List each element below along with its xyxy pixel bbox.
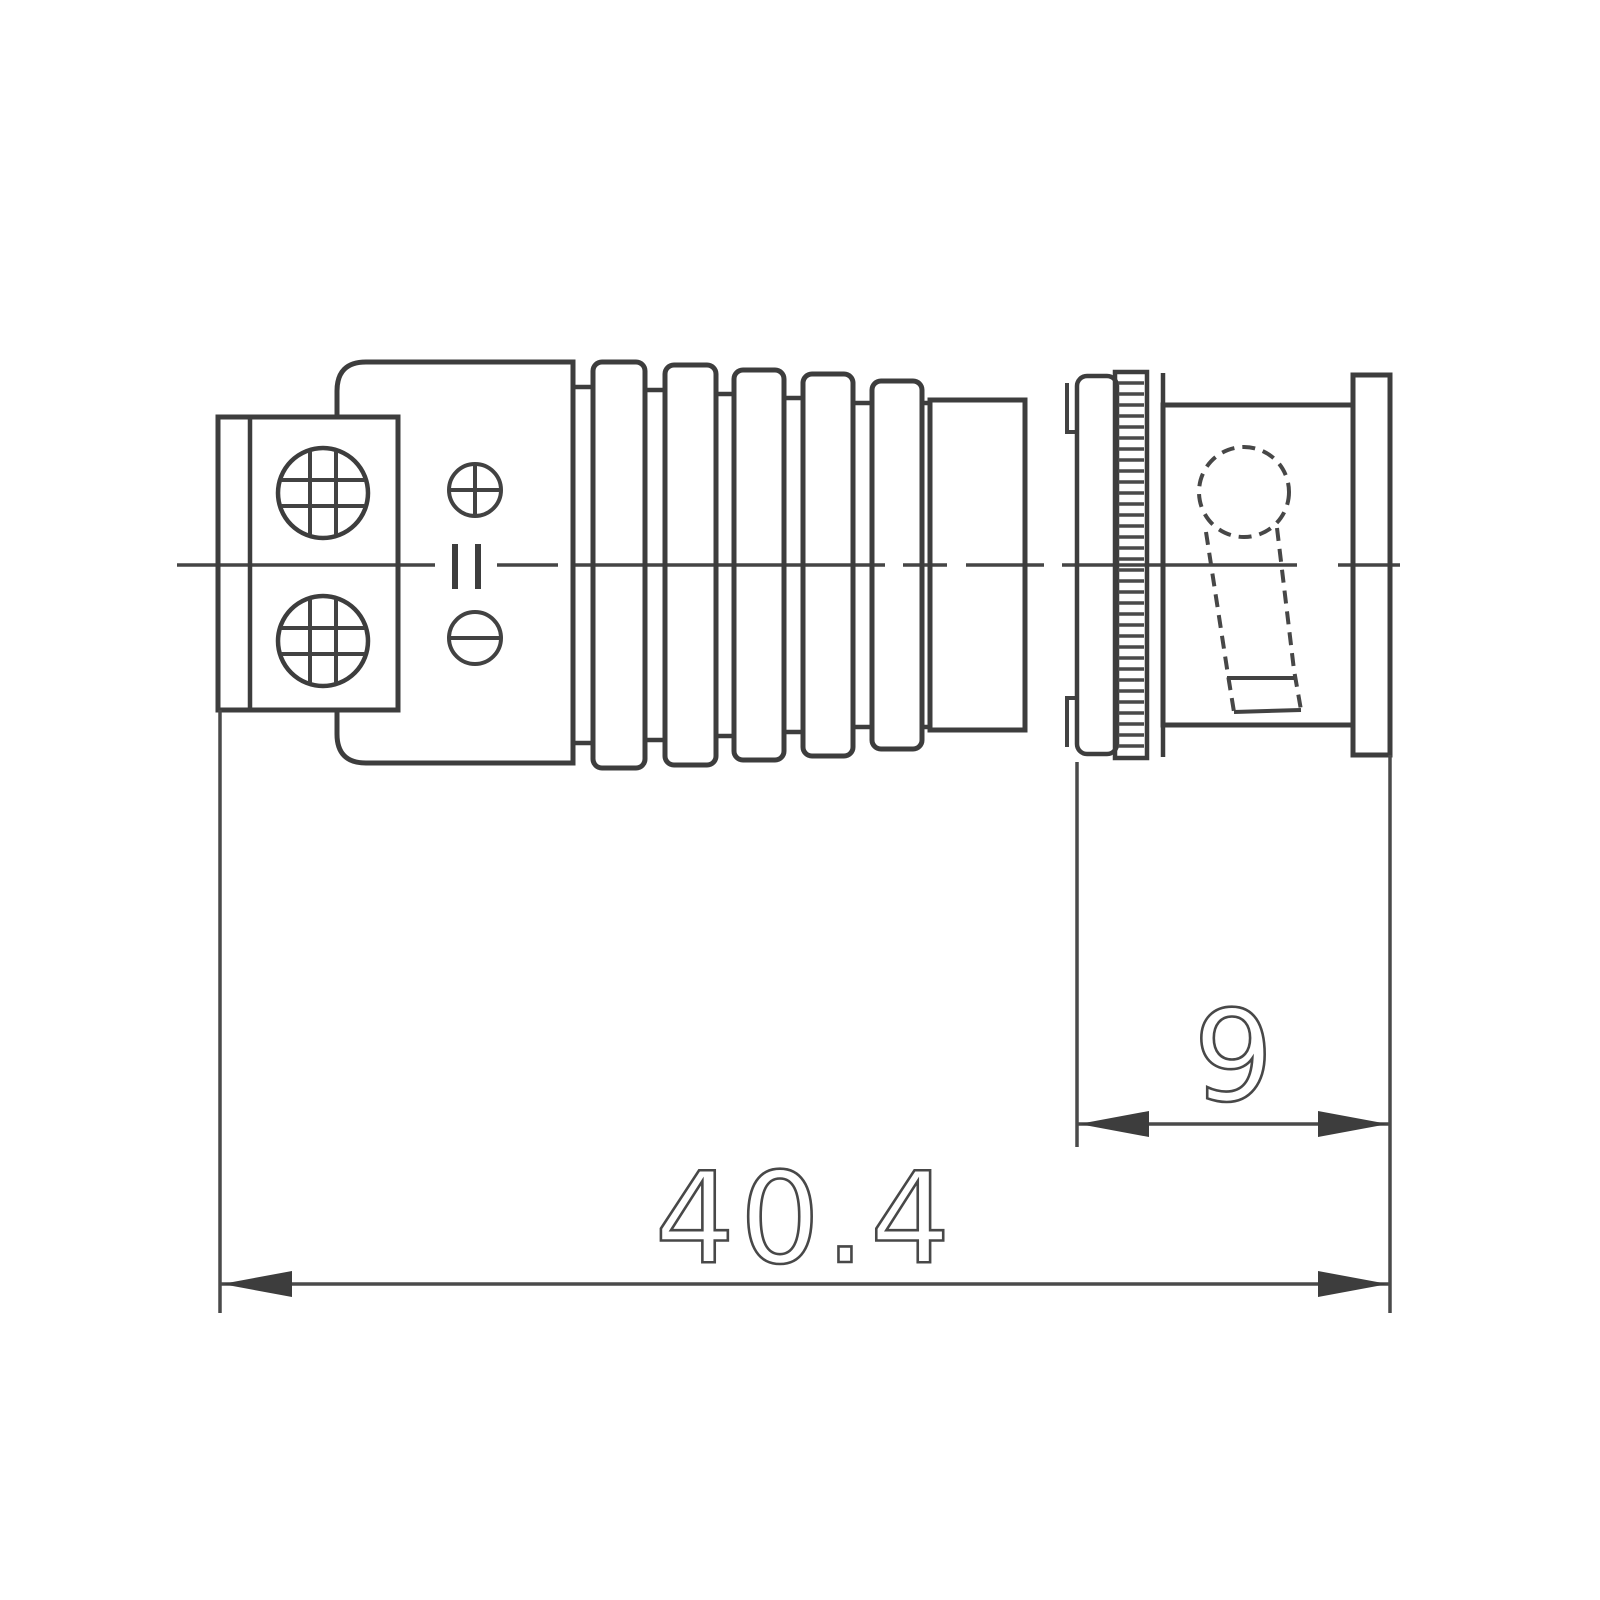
- polarity-divider-marks: [455, 544, 478, 589]
- dimension-arrow-left: [1079, 1111, 1149, 1137]
- phillips-screw-bottom: [278, 596, 368, 686]
- dimension-label-9: 9: [1193, 983, 1278, 1130]
- dimension-arrow-left: [222, 1271, 292, 1297]
- bayonet-slot-hidden: [1199, 447, 1301, 712]
- dimension-label-40-4: 40.4: [655, 1145, 956, 1292]
- dimension-bnc-body: 9: [1077, 983, 1390, 1137]
- phillips-screw-top: [278, 448, 368, 538]
- positive-terminal-screw: [449, 464, 501, 516]
- dimension-arrow-right: [1318, 1271, 1388, 1297]
- dimension-arrow-right: [1318, 1111, 1388, 1137]
- negative-terminal-screw: [449, 612, 501, 664]
- dimension-overall: 40.4: [220, 1145, 1390, 1297]
- technical-drawing: 9 40.4: [0, 0, 1600, 1600]
